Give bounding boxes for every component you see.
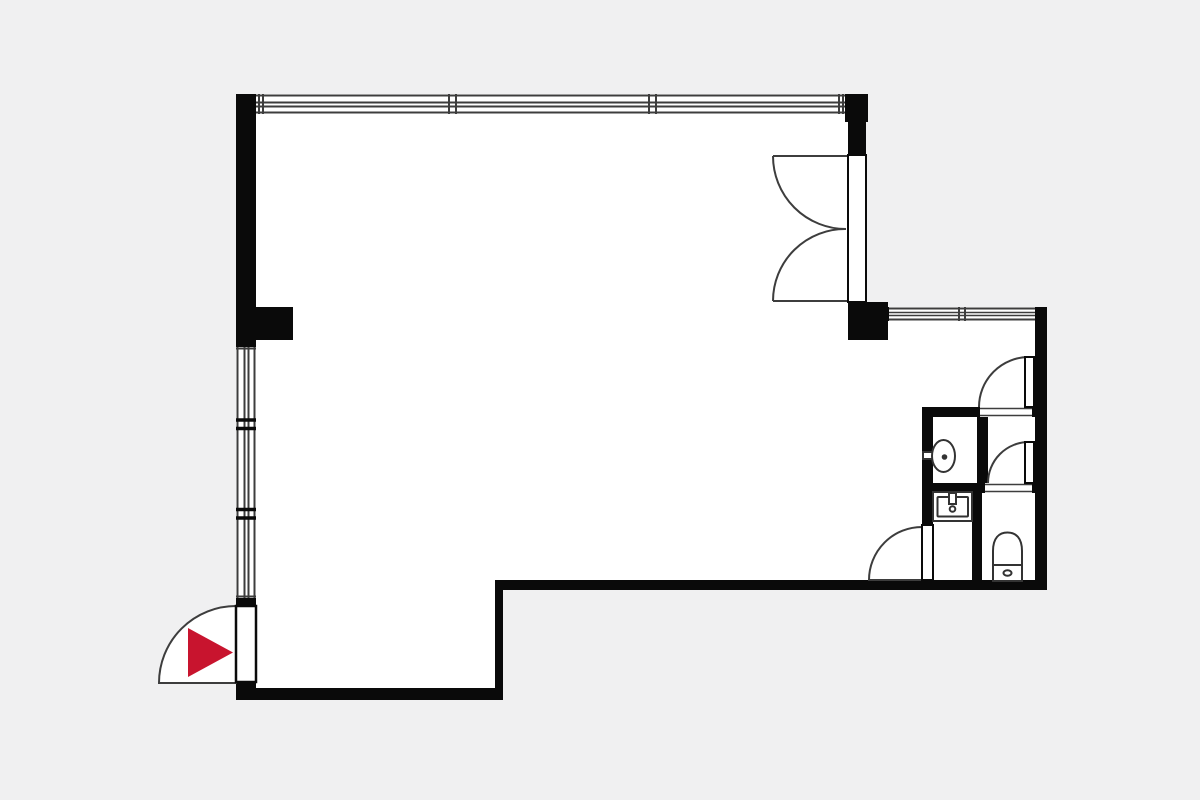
wc-door-leaf: [1025, 442, 1034, 483]
top-window-frame: [256, 94, 845, 114]
vanity-drain: [950, 506, 956, 512]
wall-left-column: [236, 94, 256, 340]
wall-wc-right-part: [1032, 483, 1037, 493]
toilet: [993, 533, 1022, 582]
floorplan-canvas: [0, 0, 1200, 800]
wall-right: [1035, 307, 1047, 590]
wall-bottom-right: [495, 580, 1047, 590]
wall-above-balcony-door: [848, 118, 866, 155]
floorplan-drawing: [0, 0, 1200, 800]
top-window: [256, 94, 845, 114]
wall-bottom-left: [236, 688, 503, 700]
closet-door-leaf: [1025, 357, 1034, 407]
washbasin-drain-dot: [942, 454, 948, 460]
wing-window-left-edge: [887, 307, 889, 321]
wall-below-balcony-door: [848, 302, 888, 340]
wall-vanity-toilet-divider: [972, 487, 982, 590]
toilet-flush-button: [1004, 570, 1012, 575]
balcony-door-frame: [848, 155, 866, 302]
wall-closet-right: [1032, 407, 1037, 417]
right-wing-window: [887, 307, 1035, 321]
wall-left-stub: [256, 307, 293, 340]
wall-basin-right: [977, 417, 988, 483]
wall-bathroom-upper: [922, 407, 933, 525]
bathroom-door-leaf: [922, 525, 933, 580]
entrance-door: [159, 606, 256, 683]
entrance-door-leaf: [236, 606, 256, 682]
toilet-bowl-icon: [993, 533, 1022, 566]
vanity-sink: [933, 492, 972, 521]
wall-step: [495, 580, 503, 700]
left-window: [236, 347, 256, 598]
vanity-faucet: [949, 493, 956, 504]
wall-topright-corner: [845, 94, 868, 122]
left-window-frame: [236, 347, 256, 598]
floor-area: [236, 94, 1047, 700]
wall-entrance-corner: [236, 682, 256, 700]
wall-leftwindow-cap: [236, 340, 256, 347]
